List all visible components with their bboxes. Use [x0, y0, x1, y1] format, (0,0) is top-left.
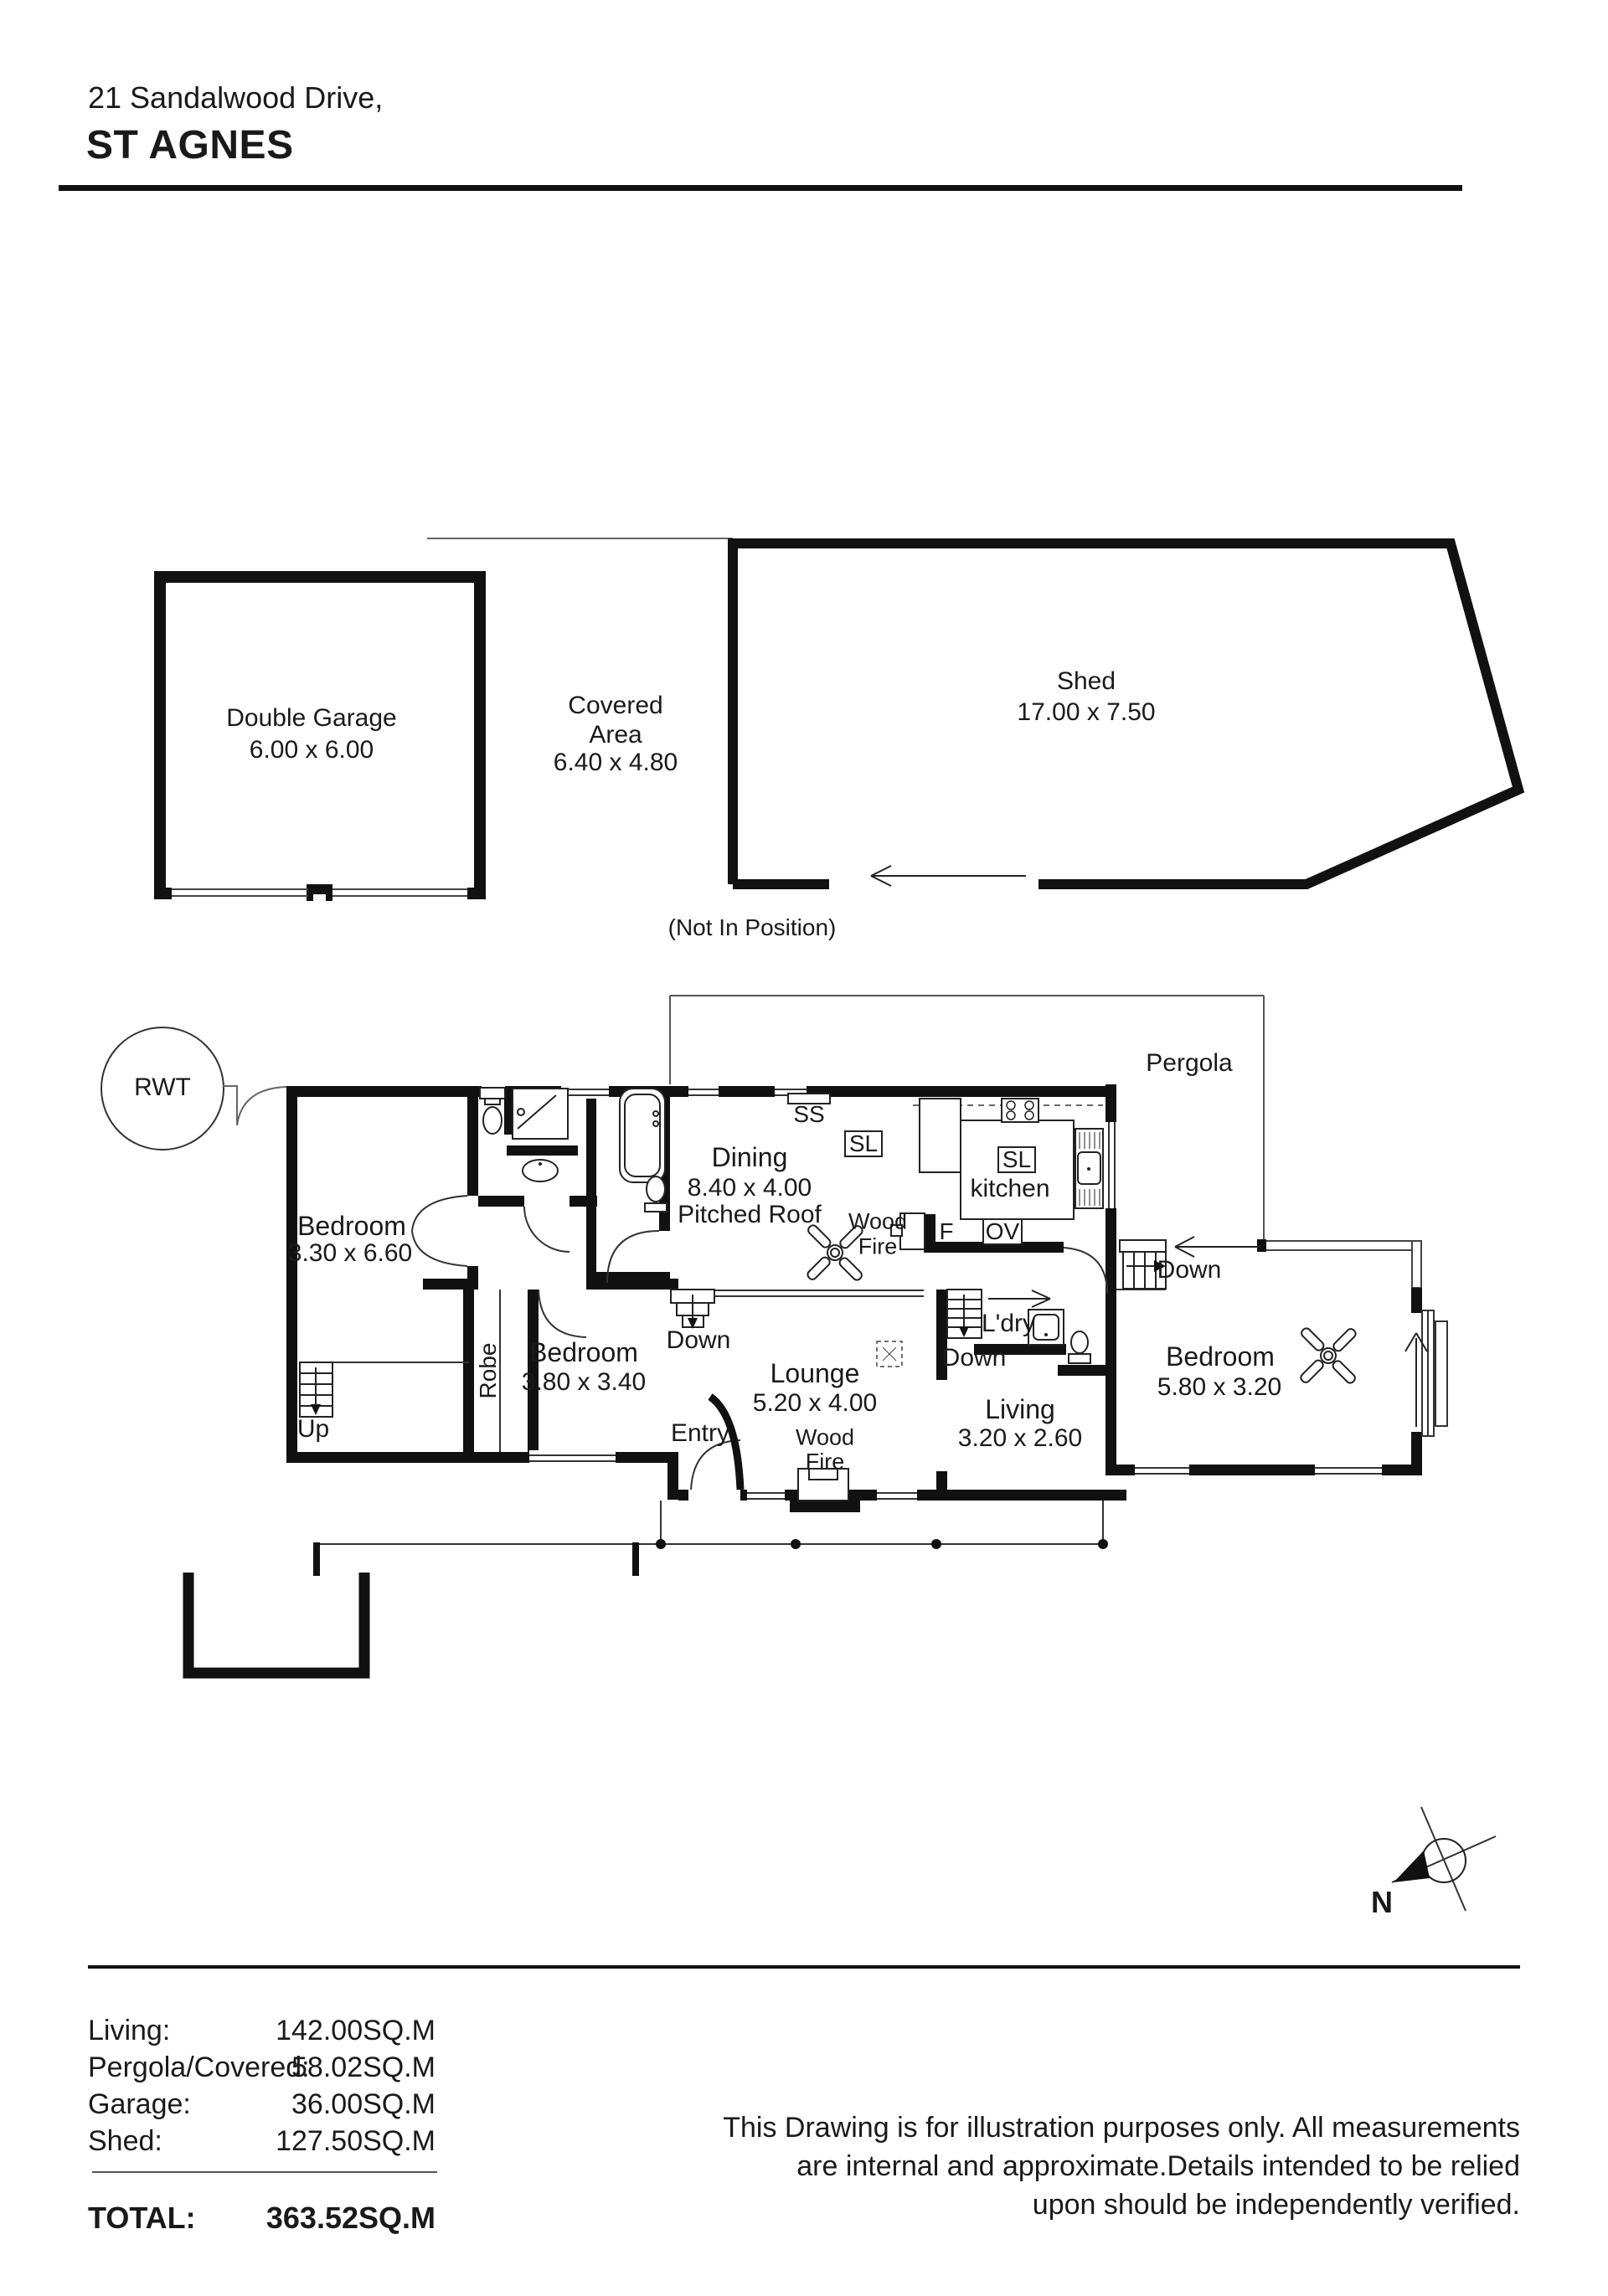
stairs-up-bedroom1: [300, 1362, 332, 1417]
header-address: 21 Sandalwood Drive,: [88, 80, 383, 116]
front-patio-outline: [188, 1573, 364, 1673]
oven-label: OV: [986, 1220, 1019, 1243]
dining-roof-note: Pitched Roof: [678, 1202, 822, 1228]
disclaimer-line: are internal and approximate.Details int…: [599, 2150, 1520, 2183]
stairs-down-laundry: [947, 1290, 982, 1338]
woodfire-label-wood: Wood: [848, 1211, 907, 1233]
pergola-label: Pergola: [1146, 1051, 1232, 1076]
living-dims: 3.20 x 2.60: [958, 1426, 1082, 1451]
ceiling-fan-icon: [1299, 1326, 1357, 1384]
laundry-door-arrow: [988, 1290, 1050, 1307]
summary-total-value: 363.52SQ.M: [88, 2201, 435, 2236]
summary-row-value: 142.00SQ.M: [88, 2015, 435, 2047]
down-label: Down: [667, 1328, 731, 1353]
summary-row-value: 36.00SQ.M: [88, 2088, 435, 2121]
stairs-down-lounge: [671, 1290, 714, 1329]
floorplan-page: 21 Sandalwood Drive, ST AGNES Double Gar…: [0, 0, 1608, 2296]
disclaimer-line: upon should be independently verified.: [599, 2189, 1520, 2221]
entry-label: Entry: [671, 1421, 729, 1446]
ceiling-vent-icon: [877, 1341, 902, 1367]
north-compass-icon: [1392, 1807, 1496, 1911]
vanity-icon: [523, 1160, 558, 1181]
bay-window: [1422, 1310, 1447, 1436]
bedroom1-dims: 3.30 x 6.60: [288, 1241, 412, 1266]
garage-dims: 6.00 x 6.00: [250, 738, 374, 763]
sl-label: SL: [849, 1132, 878, 1156]
covered-area-dims: 6.40 x 4.80: [554, 750, 678, 775]
bedroom1-label: Bedroom: [297, 1212, 406, 1239]
toilet-icon: [1069, 1331, 1090, 1363]
header-suburb: ST AGNES: [86, 122, 294, 168]
down-label: Down: [942, 1346, 1007, 1371]
pergola-wall-tick: [1257, 1239, 1266, 1252]
robe-label: Robe: [477, 1343, 500, 1399]
shed-door-arrow: [871, 866, 1026, 886]
kitchen-label: kitchen: [970, 1176, 1049, 1202]
laundry-label: L'dry: [982, 1311, 1035, 1336]
covered-area-label: Covered: [568, 693, 662, 718]
covered-area-label2: Area: [589, 723, 642, 748]
fridge-label: F: [939, 1220, 953, 1243]
dining-dims: 8.40 x 4.00: [688, 1176, 812, 1201]
shed-dims: 17.00 x 7.50: [1017, 700, 1155, 725]
ss-label: SS: [793, 1103, 824, 1126]
shower-icon: [513, 1089, 568, 1139]
woodfire-label-wood: Wood: [796, 1427, 854, 1449]
lounge-label: Lounge: [770, 1360, 860, 1387]
sink-icon: [1075, 1129, 1103, 1208]
toilet-icon: [480, 1088, 505, 1134]
dining-label: Dining: [712, 1144, 788, 1171]
rainwater-tank-icon: [101, 1027, 286, 1150]
summary-row-value: 58.02SQ.M: [88, 2051, 435, 2084]
lounge-dims: 5.20 x 4.00: [753, 1391, 877, 1416]
not-in-position-note: (Not In Position): [668, 916, 837, 940]
bedroom2-dims: 3.80 x 3.40: [522, 1370, 646, 1395]
living-label: Living: [985, 1396, 1055, 1423]
woodfire-label-fire: Fire: [858, 1236, 898, 1259]
woodfire-label-fire: Fire: [806, 1451, 845, 1474]
disclaimer-line: This Drawing is for illustration purpose…: [599, 2112, 1520, 2144]
bedroom3-dims: 5.80 x 3.20: [1157, 1375, 1281, 1400]
stove-icon: [1002, 1099, 1038, 1122]
down-label: Down: [1157, 1258, 1222, 1283]
north-label: N: [1371, 1887, 1393, 1918]
pergola-arrow: [1175, 1237, 1260, 1257]
bedroom2-label: Bedroom: [529, 1339, 638, 1366]
bedroom3-label: Bedroom: [1166, 1343, 1275, 1370]
rwt-label: RWT: [134, 1075, 191, 1100]
bathtub-icon: [620, 1089, 665, 1182]
garage-label: Double Garage: [226, 706, 396, 731]
toilet-icon: [645, 1176, 667, 1212]
sl-label: SL: [1002, 1148, 1031, 1171]
up-label: Up: [297, 1417, 329, 1442]
summary-row-value: 127.50SQ.M: [88, 2125, 435, 2158]
floorplan-drawing: [0, 0, 1608, 2296]
shed-label: Shed: [1057, 669, 1116, 694]
